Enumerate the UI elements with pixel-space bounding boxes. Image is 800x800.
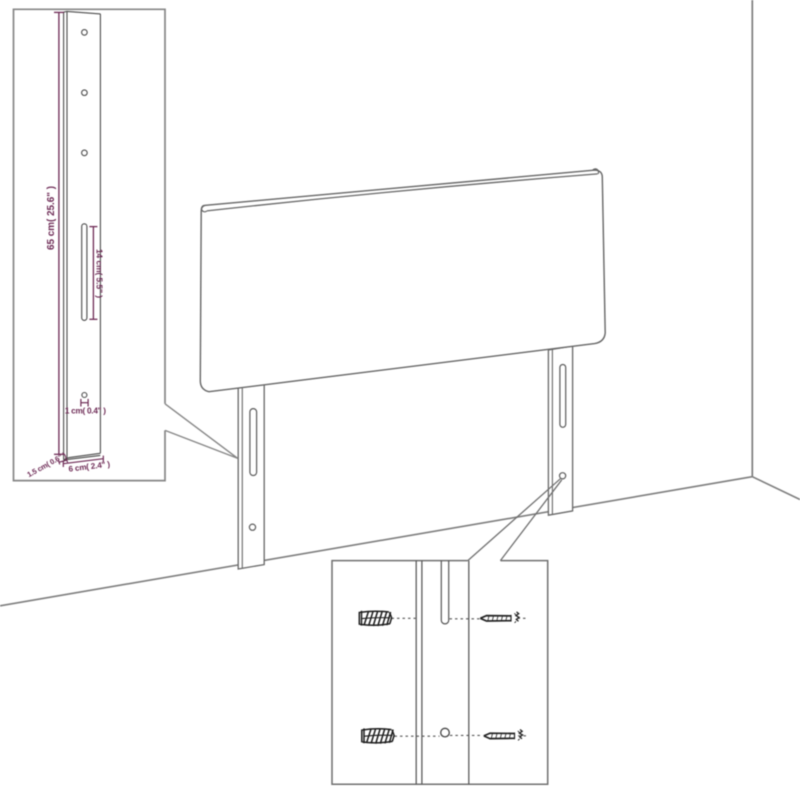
svg-text:14 cm( 5.5" ): 14 cm( 5.5" ) — [95, 249, 105, 298]
svg-text:1.5 cm( 0.6" ): 1.5 cm( 0.6" ) — [25, 450, 68, 479]
svg-text:1 cm( 0.4" ): 1 cm( 0.4" ) — [65, 406, 106, 415]
svg-text:65 cm( 25.6" ): 65 cm( 25.6" ) — [46, 186, 57, 250]
